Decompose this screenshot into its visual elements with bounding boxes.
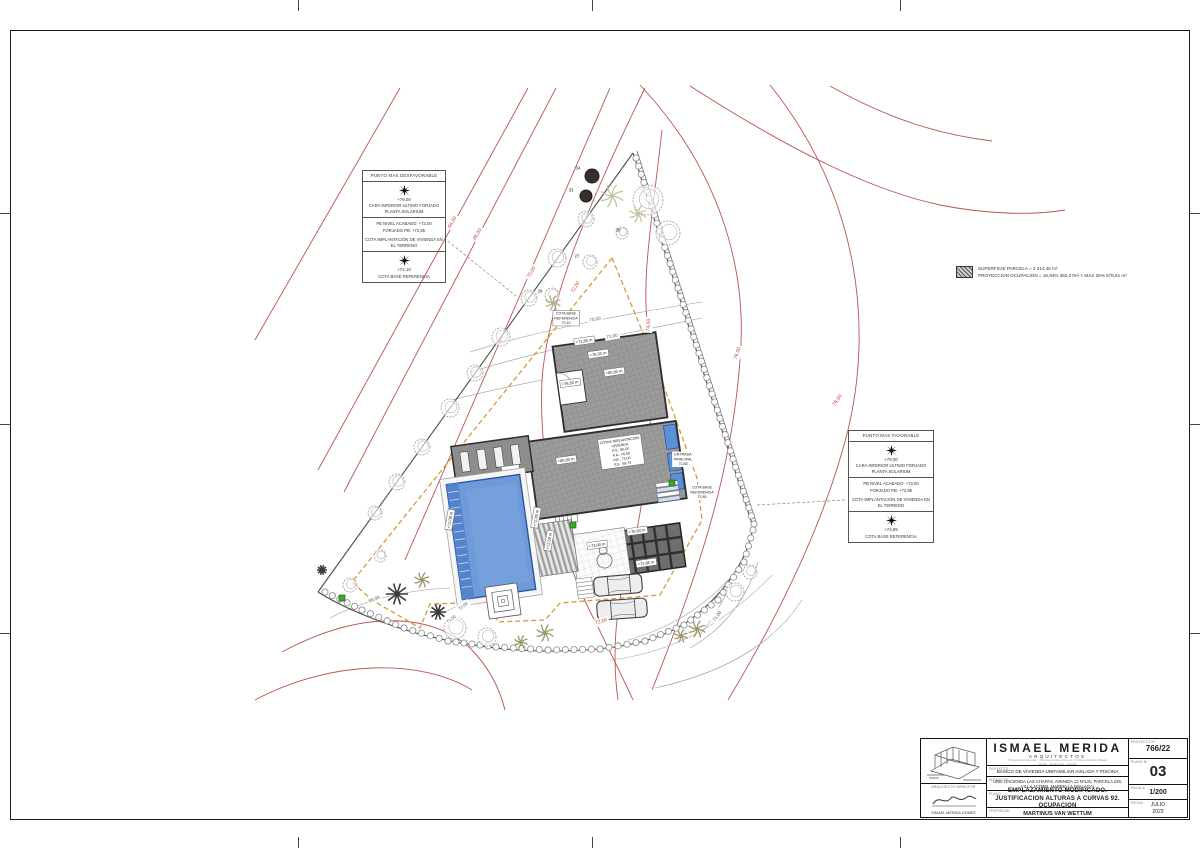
legend-surface-line: SUPERFICIE PARCELA = 2.314,45 m² bbox=[978, 266, 1127, 273]
hedge-shrub bbox=[736, 567, 742, 573]
planter bbox=[669, 480, 675, 486]
hedge-shrub bbox=[735, 472, 741, 478]
hedge-shrub bbox=[419, 630, 425, 636]
level-caption: COTA IMPLANTACIÓN DE VIVIENDA EN EL TERR… bbox=[365, 237, 443, 248]
reference-row: +72,10 COTA BASE REFERENCIA bbox=[363, 252, 445, 282]
hedge-shrub bbox=[738, 480, 744, 486]
hedge-shrub bbox=[704, 375, 710, 381]
contour-label: 76,00 bbox=[732, 344, 744, 361]
hedge-shrub bbox=[746, 505, 752, 511]
hedge-shrub bbox=[436, 635, 442, 641]
hedge-shrub bbox=[641, 179, 647, 185]
level-line: FORJADO PB: +72,85 bbox=[870, 488, 912, 493]
proyecto-num-value: 766/22 bbox=[1146, 744, 1170, 753]
escala-value: 1/200 bbox=[1149, 789, 1167, 796]
contour-label: 74,00 bbox=[644, 317, 653, 333]
tree-dark bbox=[585, 169, 599, 183]
house-sketch bbox=[921, 739, 986, 784]
hedge-shrub bbox=[665, 628, 671, 634]
tree bbox=[374, 550, 386, 562]
svg-text:30: 30 bbox=[616, 227, 621, 232]
hedge-shrub bbox=[727, 448, 733, 454]
hedge-shrub bbox=[691, 334, 697, 340]
propiedad-row: PROPIEDAD MARTINUS VAN WETTUM bbox=[987, 808, 1128, 819]
hedge-shrub bbox=[685, 318, 691, 324]
fecha-row: FECHA JULIO 2023 bbox=[1129, 800, 1187, 817]
hedge-shrub bbox=[667, 261, 673, 267]
reference-row: PB NIVEL ACABADO: +73,00 FORJADO PB: +72… bbox=[849, 478, 933, 512]
contour-label: 69,00 bbox=[366, 593, 382, 605]
fountain bbox=[485, 583, 521, 619]
director-name: ISMAEL MERIDA GOMEZ bbox=[931, 811, 975, 815]
title-block-architect-column: ARQUITECTO DIRECTOR ISMAEL MERIDA GOMEZ bbox=[921, 739, 987, 817]
occupation-legend: SUPERFICIE PARCELA = 2.314,45 m² PROYECC… bbox=[956, 266, 1127, 280]
hedge-shrub bbox=[743, 497, 749, 503]
signature-area: ARQUITECTO DIRECTOR ISMAEL MERIDA GOMEZ bbox=[921, 784, 986, 817]
hedge-shrub bbox=[745, 543, 751, 549]
hedge-shrub bbox=[493, 644, 499, 650]
tree-number: 28 bbox=[538, 288, 543, 293]
firm-header: ISMAEL MERIDA ARQUITECTOS Proyectos de V… bbox=[987, 739, 1128, 766]
svg-text:34: 34 bbox=[576, 165, 581, 170]
hedge-shrub bbox=[693, 342, 699, 348]
title-block-number-column: PROYECTO Nº 766/22 PLANO Nº 03 ESCALA 1/… bbox=[1129, 739, 1187, 817]
planter bbox=[570, 522, 576, 528]
contour-label: 71,00 bbox=[710, 608, 724, 624]
tree-number: 30 bbox=[616, 227, 621, 232]
level-value: +74,85 bbox=[884, 527, 898, 533]
hedge-shrub bbox=[719, 423, 725, 429]
hedge-shrub bbox=[633, 640, 639, 646]
proyecto-num-label: PROYECTO Nº bbox=[1131, 740, 1155, 744]
hedge-shrub bbox=[562, 647, 568, 653]
hedge-shrub bbox=[367, 611, 373, 617]
hedge-shrub bbox=[536, 646, 542, 652]
palm-tree bbox=[415, 573, 430, 588]
planter bbox=[339, 595, 345, 601]
site-plan: 64,0066,0070,0072,0074,0076,0078,0072,00… bbox=[0, 0, 1200, 848]
tree-dark bbox=[580, 190, 592, 202]
title-block: ARQUITECTO DIRECTOR ISMAEL MERIDA GOMEZ … bbox=[920, 738, 1188, 818]
hedge-shrub bbox=[748, 513, 754, 519]
hedge-shrub bbox=[597, 646, 603, 652]
director-label: ARQUITECTO DIRECTOR bbox=[931, 785, 975, 789]
tree-number: 33 bbox=[569, 187, 574, 192]
proyecto-label: PROYECTO bbox=[989, 767, 1008, 771]
car bbox=[593, 573, 642, 596]
hedge-shrub bbox=[642, 638, 648, 644]
hedge-shrub bbox=[664, 253, 670, 259]
hedge-shrub bbox=[401, 625, 407, 631]
tree bbox=[578, 211, 594, 227]
level-caption: COTA BASE REFERENCIA bbox=[865, 534, 917, 539]
tree bbox=[545, 288, 559, 302]
hedge-shrub bbox=[384, 618, 390, 624]
hedge-shrub bbox=[670, 269, 676, 275]
hedge-shrub bbox=[708, 602, 714, 608]
tree bbox=[726, 583, 744, 601]
hedge-shrub bbox=[445, 638, 451, 644]
level-caption: CARA INFERIOR ULTIMO FORJADO PLANTA SOLA… bbox=[365, 203, 443, 214]
hedge-shrub bbox=[733, 464, 739, 470]
level-line: PB NIVEL ACABADO: +73,00 bbox=[376, 221, 431, 226]
hedge-shrub bbox=[615, 643, 621, 649]
hedge-shrub bbox=[677, 293, 683, 299]
plano-num-label: PLANO Nº bbox=[1131, 760, 1148, 764]
propiedad-value: MARTINUS VAN WETTUM bbox=[1019, 808, 1096, 819]
hedge-shrub bbox=[633, 155, 639, 161]
level-value: +72,10 bbox=[397, 267, 411, 273]
hedge-shrub bbox=[720, 589, 726, 595]
main-building-block bbox=[527, 421, 686, 519]
reference-box-title: PUNTO MAS DESFAVORABLE bbox=[363, 171, 445, 182]
plano-num-row: PLANO Nº 03 bbox=[1129, 759, 1187, 785]
tree bbox=[478, 628, 496, 646]
contour-label: 72,00 bbox=[593, 616, 610, 628]
level-caption: CARA INFERIOR ULTIMO FORJADO PLANTA SOLA… bbox=[851, 463, 931, 474]
tree bbox=[656, 221, 680, 245]
hedge-shrub bbox=[329, 593, 335, 599]
palm-tree bbox=[537, 625, 554, 642]
hedge-shrub bbox=[751, 521, 757, 527]
reference-row: PB NIVEL ACABADO: +73,00 FORJADO PB: +72… bbox=[363, 218, 445, 252]
tree bbox=[441, 399, 459, 417]
hedge-shrub bbox=[545, 647, 551, 653]
hedge-shrub bbox=[658, 632, 664, 638]
hedge-shrub bbox=[750, 527, 756, 533]
hedge-shrub bbox=[748, 535, 754, 541]
hedge-shrub bbox=[510, 645, 516, 651]
hedge-shrub bbox=[695, 612, 701, 618]
patio-steps bbox=[576, 577, 595, 599]
level-line: PB NIVEL ACABADO: +73,00 bbox=[863, 481, 918, 486]
svg-text:74,00: 74,00 bbox=[645, 318, 652, 331]
house-axonometric-icon bbox=[925, 741, 983, 781]
tree bbox=[492, 328, 510, 346]
plano-row: PLANO EMPLAZAMIENTO MODIFICADO. JUSTIFIC… bbox=[987, 791, 1128, 808]
tree bbox=[743, 565, 757, 579]
hedge-shrub bbox=[731, 574, 737, 580]
hedge-shrub bbox=[588, 646, 594, 652]
hedge-shrub bbox=[469, 641, 475, 647]
svg-text:27: 27 bbox=[575, 253, 580, 258]
hedge-shrub bbox=[688, 326, 694, 332]
hedge-shrub bbox=[393, 621, 399, 627]
level-value: +79,00 bbox=[884, 457, 898, 463]
svg-text:33: 33 bbox=[569, 187, 574, 192]
hedge-shrub bbox=[725, 440, 731, 446]
agave-plant bbox=[430, 604, 446, 619]
level-value: +79,00 bbox=[397, 197, 411, 203]
tree bbox=[521, 290, 537, 306]
level-caption: COTA BASE REFERENCIA bbox=[378, 274, 430, 279]
hedge-shrub bbox=[636, 163, 642, 169]
hedge-shrub bbox=[554, 647, 560, 653]
reference-box-favorable: PUNTO MAS FAVORABLE +79,00 CARA INFERIOR… bbox=[848, 430, 934, 543]
hedge-shrub bbox=[712, 399, 718, 405]
contour-label: 70,00 bbox=[524, 263, 539, 281]
contour-label: 70,00 bbox=[587, 314, 603, 323]
hedge-shrub bbox=[698, 358, 704, 364]
hedge-shrub bbox=[701, 607, 707, 613]
tree-number: 27 bbox=[575, 253, 580, 258]
hedge-shrub bbox=[722, 431, 728, 437]
drawing-sheet: 64,0066,0070,0072,0074,0076,0078,0072,00… bbox=[0, 0, 1200, 848]
agave-plant bbox=[317, 565, 327, 575]
reference-point-icon bbox=[399, 185, 410, 196]
hedge-shrub bbox=[730, 456, 736, 462]
hedge-shrub bbox=[606, 644, 612, 650]
tree bbox=[414, 439, 430, 455]
reference-row: +79,00 CARA INFERIOR ULTIMO FORJADO PLAN… bbox=[363, 182, 445, 219]
hedge-shrub bbox=[352, 603, 358, 609]
hedge-shrub bbox=[701, 366, 707, 372]
hedge-shrub bbox=[359, 607, 365, 613]
tree bbox=[389, 474, 405, 490]
hedge-shrub bbox=[741, 559, 747, 565]
escala-label: ESCALA bbox=[1131, 786, 1145, 790]
fecha-value: JULIO 2023 bbox=[1151, 802, 1165, 815]
reference-box-desfavorable: PUNTO MAS DESFAVORABLE +79,00 CARA INFER… bbox=[362, 170, 446, 283]
svg-text:28: 28 bbox=[538, 288, 543, 293]
signature-icon bbox=[929, 792, 979, 808]
plano-label: PLANO bbox=[989, 792, 1001, 796]
hedge-shrub bbox=[638, 171, 644, 177]
legend-occupation-line: PROYECCION OCUPACION = 16,94% 392,27m² <… bbox=[978, 273, 1127, 280]
propiedad-label: PROPIEDAD bbox=[989, 809, 1010, 813]
hedge-shrub bbox=[571, 646, 577, 652]
level-caption: COTA IMPLANTACIÓN DE VIVIENDA EN EL TERR… bbox=[851, 497, 931, 508]
occupation-swatch bbox=[956, 266, 973, 278]
hedge-shrub bbox=[528, 646, 534, 652]
fecha-label: FECHA bbox=[1131, 801, 1143, 805]
situacion-label: SITUACION bbox=[989, 778, 1008, 782]
hedge-shrub bbox=[740, 488, 746, 494]
contour-label: 78,00 bbox=[830, 392, 846, 409]
tree bbox=[548, 249, 566, 267]
proyecto-num-row: PROYECTO Nº 766/22 bbox=[1129, 739, 1187, 759]
hedge-shrub bbox=[502, 644, 508, 650]
tree-number: 34 bbox=[576, 165, 581, 170]
hedge-shrub bbox=[688, 617, 694, 623]
hedge-shrub bbox=[322, 589, 328, 595]
agave-plant bbox=[386, 584, 408, 605]
hedge-shrub bbox=[675, 285, 681, 291]
hedge-shrub bbox=[410, 628, 416, 634]
hedge-shrub bbox=[427, 633, 433, 639]
hedge-shrub bbox=[743, 551, 749, 557]
hedge-shrub bbox=[650, 635, 656, 641]
escala-row: ESCALA 1/200 bbox=[1129, 785, 1187, 800]
hedge-shrub bbox=[453, 639, 459, 645]
hedge-shrub bbox=[696, 350, 702, 356]
palm-tree bbox=[601, 185, 623, 207]
tree bbox=[467, 365, 483, 381]
contour-label: 72,00 bbox=[568, 278, 583, 296]
hedge-shrub bbox=[717, 415, 723, 421]
reference-box-title: PUNTO MAS FAVORABLE bbox=[849, 431, 933, 442]
firm-name: ISMAEL MERIDA bbox=[987, 741, 1128, 755]
reference-point-icon bbox=[399, 255, 410, 266]
hedge-shrub bbox=[683, 309, 689, 315]
tree bbox=[368, 506, 382, 520]
tree bbox=[583, 255, 597, 269]
hedge-shrub bbox=[714, 407, 720, 413]
entrada-label: ENTRADAPRINCIPAL72,85 bbox=[672, 452, 694, 467]
hedge-shrub bbox=[376, 614, 382, 620]
hedge-shrub bbox=[624, 641, 630, 647]
level-line: FORJADO PB: +72,85 bbox=[383, 228, 425, 233]
hedge-shrub bbox=[706, 383, 712, 389]
hedge-shrub bbox=[681, 622, 687, 628]
swimming-pool bbox=[440, 468, 543, 607]
reference-point-icon bbox=[886, 445, 897, 456]
hedge-shrub bbox=[672, 277, 678, 283]
reference-point-icon bbox=[886, 515, 897, 526]
cota-base-label: COTA BASEREFERENCIA72,85 bbox=[689, 485, 716, 500]
cotas-implantacion-table: COTAS IMPLANTACIÓNVIVIENDAP.S.: 80,00P.A… bbox=[598, 434, 645, 470]
hedge-shrub bbox=[461, 640, 467, 646]
tree bbox=[343, 578, 357, 592]
hedge-shrub bbox=[709, 391, 715, 397]
reference-row: +79,00 CARA INFERIOR ULTIMO FORJADO PLAN… bbox=[849, 442, 933, 479]
hedge-shrub bbox=[580, 646, 586, 652]
title-block-main-column: ISMAEL MERIDA ARQUITECTOS Proyectos de V… bbox=[987, 739, 1129, 817]
cota-base-label: COTA BASEREFERENCIA72,10 bbox=[553, 311, 580, 326]
proyecto-value: BASICO DE VIVIENDA UNIFAMILIAR AISLADA Y… bbox=[993, 766, 1123, 776]
hedge-shrub bbox=[680, 301, 686, 307]
hedge-shrub bbox=[715, 597, 721, 603]
plano-num-value: 03 bbox=[1150, 763, 1167, 780]
reference-row: +74,85 COTA BASE REFERENCIA bbox=[849, 512, 933, 542]
